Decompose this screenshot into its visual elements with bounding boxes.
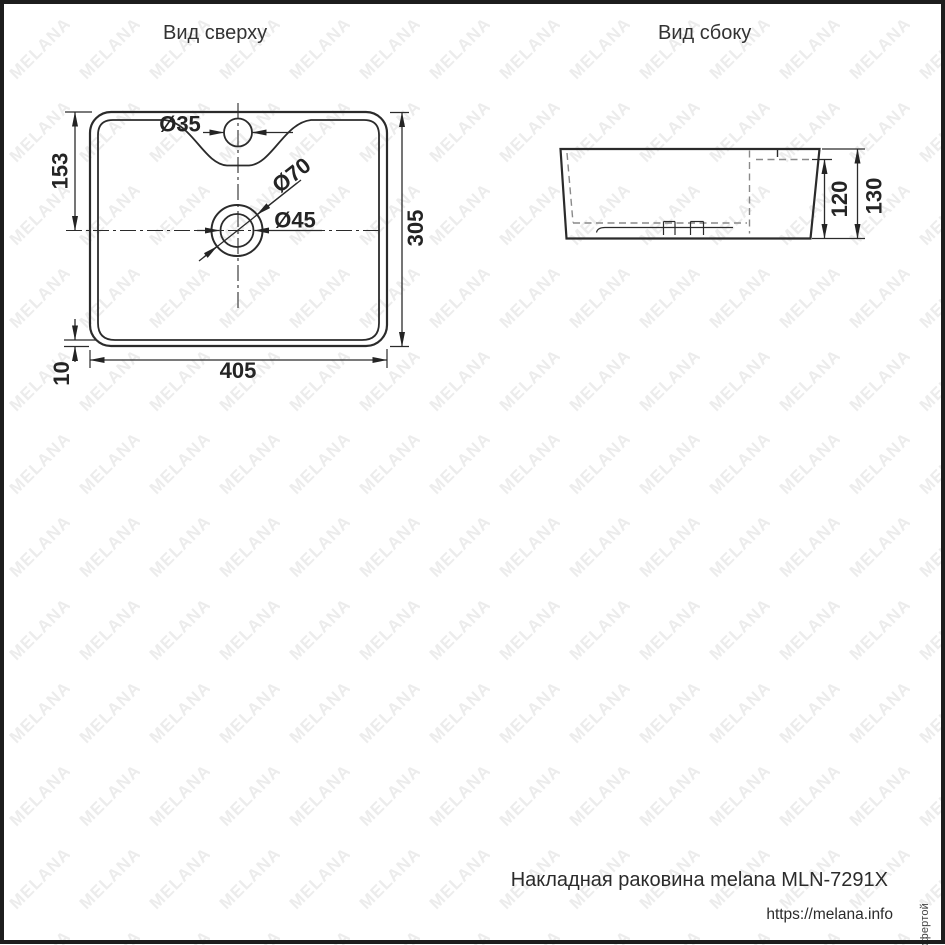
product-name: Накладная раковина melana MLN-7291X: [511, 869, 888, 892]
watermark-layer: [0, 0, 945, 945]
spec-sheet-page: MELANA: [0, 0, 945, 945]
dim-label-faucet-hole: Ø35: [159, 112, 201, 137]
dim-label-405: 405: [220, 358, 257, 383]
dim-label-305: 305: [403, 210, 428, 247]
dim-label-10: 10: [49, 361, 74, 385]
dim-label-153: 153: [48, 153, 73, 190]
dim-label-130: 130: [862, 178, 887, 215]
dim-label-drain-hole: Ø45: [274, 208, 316, 233]
technical-drawing: MELANA: [0, 0, 945, 945]
website-url[interactable]: https://melana.info: [766, 906, 893, 924]
legal-disclaimer: Этот документ не является публичной офер…: [919, 903, 931, 945]
dim-label-120: 120: [827, 181, 852, 218]
top-view-title: Вид сверху: [163, 22, 267, 45]
side-view-title: Вид сбоку: [658, 22, 751, 45]
